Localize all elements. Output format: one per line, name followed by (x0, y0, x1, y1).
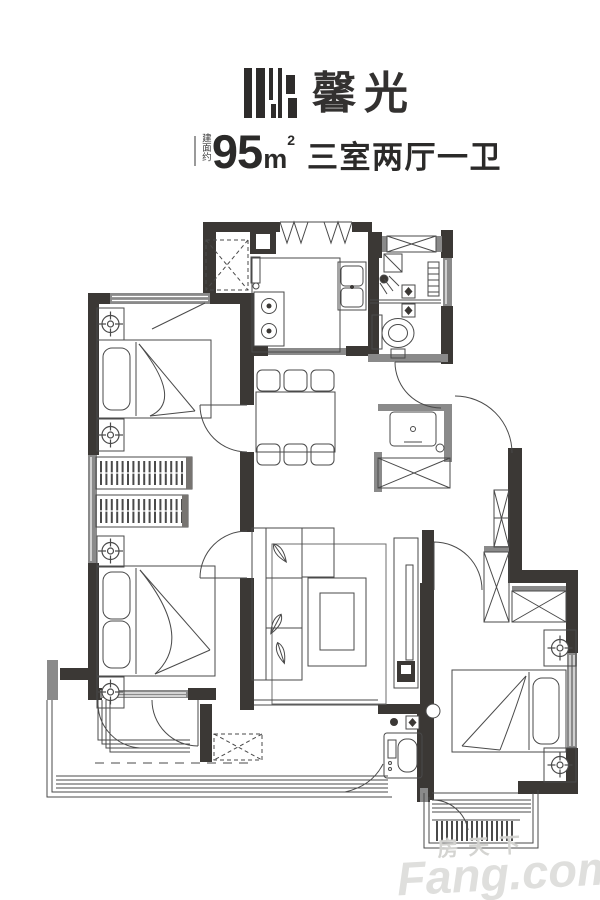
bedroom-bottom-right (432, 630, 576, 793)
duct-bowtie-shaft (494, 490, 509, 547)
floor-drain (402, 285, 415, 317)
shower-head-icon (380, 275, 399, 294)
tv-cabinet (394, 538, 418, 688)
balcony-bottom-right (424, 790, 538, 848)
kitchen-sink (338, 262, 366, 310)
towel-ladder (428, 262, 439, 296)
wardrobe-x-box-wide (512, 591, 566, 622)
wardrobe-hanging-racks (96, 457, 192, 527)
riser-shaft-x-box (378, 458, 450, 488)
walls-secondary-windows (47, 236, 577, 802)
washing-machine (384, 733, 422, 778)
floorplan-drawing (0, 0, 600, 900)
ac-platform (214, 734, 262, 760)
dining-set (256, 370, 335, 465)
double-bed (452, 670, 566, 752)
floorplan-page: 馨光 建面约 95 m2 三室两厅一卫 (0, 0, 600, 900)
double-bed (97, 566, 215, 676)
bedroom-bottom-left (97, 536, 215, 708)
living-room (252, 528, 418, 705)
railing (432, 820, 520, 843)
double-bed (97, 340, 211, 418)
sofa (252, 528, 334, 680)
bedroom-top-left (97, 303, 211, 451)
kitchen (250, 228, 366, 352)
cabinet-x-box-tall (484, 552, 509, 622)
balcony-bottom-left (47, 700, 392, 797)
entry-threshold-zigzag (280, 222, 352, 243)
coffee-table (308, 578, 366, 666)
washbasin-niche (390, 412, 444, 452)
kitchen-stove (254, 292, 284, 346)
